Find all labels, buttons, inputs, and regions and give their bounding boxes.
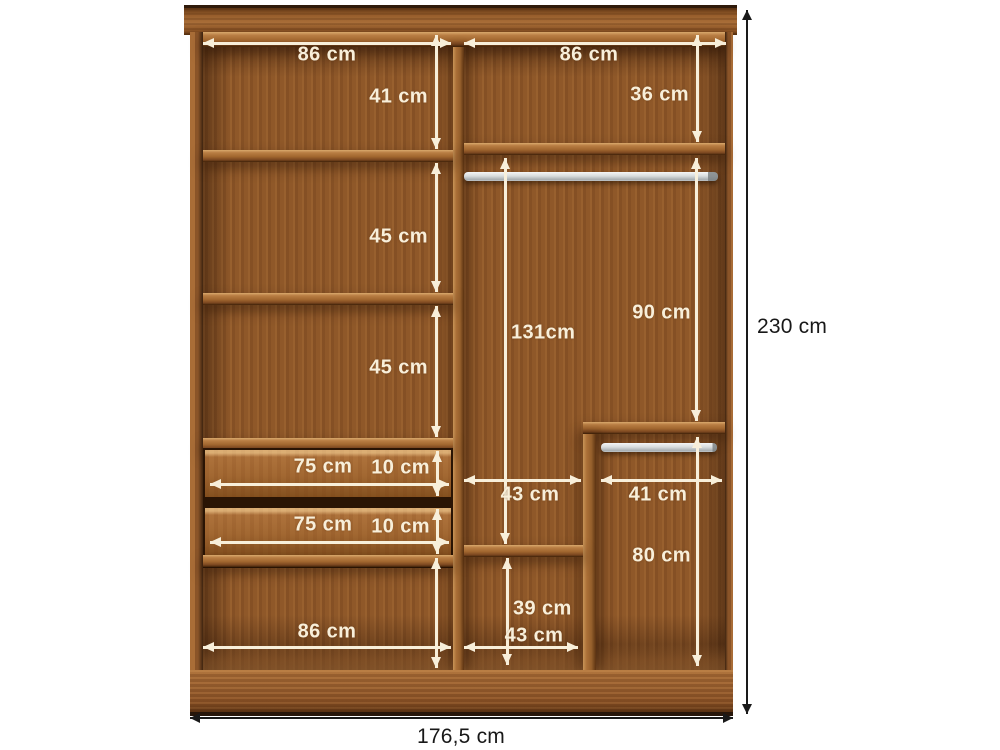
dim-label-right-top-gap: 36 cm: [630, 84, 689, 107]
dim-line-hang-section-height: [695, 158, 698, 421]
interior-back-panel: [203, 32, 725, 670]
dim-line-center-width: [464, 479, 581, 482]
dim-label-drawer-1-height: 10 cm: [371, 457, 430, 480]
dim-label-drawer-2-height: 10 cm: [371, 516, 430, 539]
dim-line-right-lower-height: [696, 437, 699, 666]
dim-label-center-lower-height: 39 cm: [513, 598, 572, 621]
dim-label-right-width: 41 cm: [629, 484, 688, 507]
dim-line-left-lower: [435, 558, 438, 668]
lower-section-top-board: [583, 422, 725, 434]
dim-label-drawer-2-width: 75 cm: [294, 514, 353, 537]
center-mid-shelf: [464, 545, 583, 557]
dim-label-center-bottom-width: 43 cm: [505, 625, 564, 648]
dim-label-left-bottom-width: 86 cm: [298, 621, 357, 644]
hanging-rod-upper: [464, 172, 718, 181]
dim-label-center-section-height: 131cm: [511, 322, 575, 345]
dim-line-overall-height: [746, 10, 748, 714]
dim-line-right-width: [601, 479, 722, 482]
left-shelf-1: [203, 150, 453, 162]
left-shelf-4: [203, 555, 453, 567]
dim-label-right-lower-height: 80 cm: [632, 545, 691, 568]
right-side-panel: [725, 32, 733, 670]
crown-top-panel: [184, 5, 737, 35]
dim-line-right-top-gap: [696, 35, 699, 142]
dim-line-left-gap-3: [435, 306, 438, 437]
dim-label-overall-height: 230 cm: [757, 315, 827, 339]
left-side-panel: [190, 32, 203, 670]
dim-label-center-width: 43 cm: [501, 484, 560, 507]
dim-label-right-top-width: 86 cm: [560, 44, 619, 67]
center-divider: [453, 47, 464, 670]
base-plinth: [190, 670, 733, 716]
dim-line-left-bottom-width: [203, 646, 451, 649]
dim-label-hang-section-height: 90 cm: [632, 302, 691, 325]
dim-label-drawer-1-width: 75 cm: [294, 456, 353, 479]
dim-line-overall-width: [190, 717, 733, 719]
dim-line-drawer-1-width: [210, 483, 449, 486]
dim-line-left-gap-1: [435, 35, 438, 149]
left-shelf-2: [203, 293, 453, 305]
wardrobe-dimension-diagram: 86 cm 86 cm 41 cm 45 cm 45 cm 36 cm 90 c…: [0, 0, 1000, 750]
dim-line-left-gap-2: [435, 163, 438, 292]
dim-label-left-gap-2: 45 cm: [369, 226, 428, 249]
lower-section-partition: [583, 434, 596, 670]
dim-label-left-gap-1: 41 cm: [369, 86, 428, 109]
dim-line-drawer-2-height: [436, 509, 439, 554]
dim-label-left-gap-3: 45 cm: [369, 357, 428, 380]
dim-line-drawer-1-height: [436, 451, 439, 496]
dim-label-left-top-width: 86 cm: [298, 44, 357, 67]
dim-line-drawer-2-width: [210, 541, 449, 544]
right-top-shelf: [464, 143, 725, 155]
dim-label-overall-width: 176,5 cm: [417, 725, 505, 749]
